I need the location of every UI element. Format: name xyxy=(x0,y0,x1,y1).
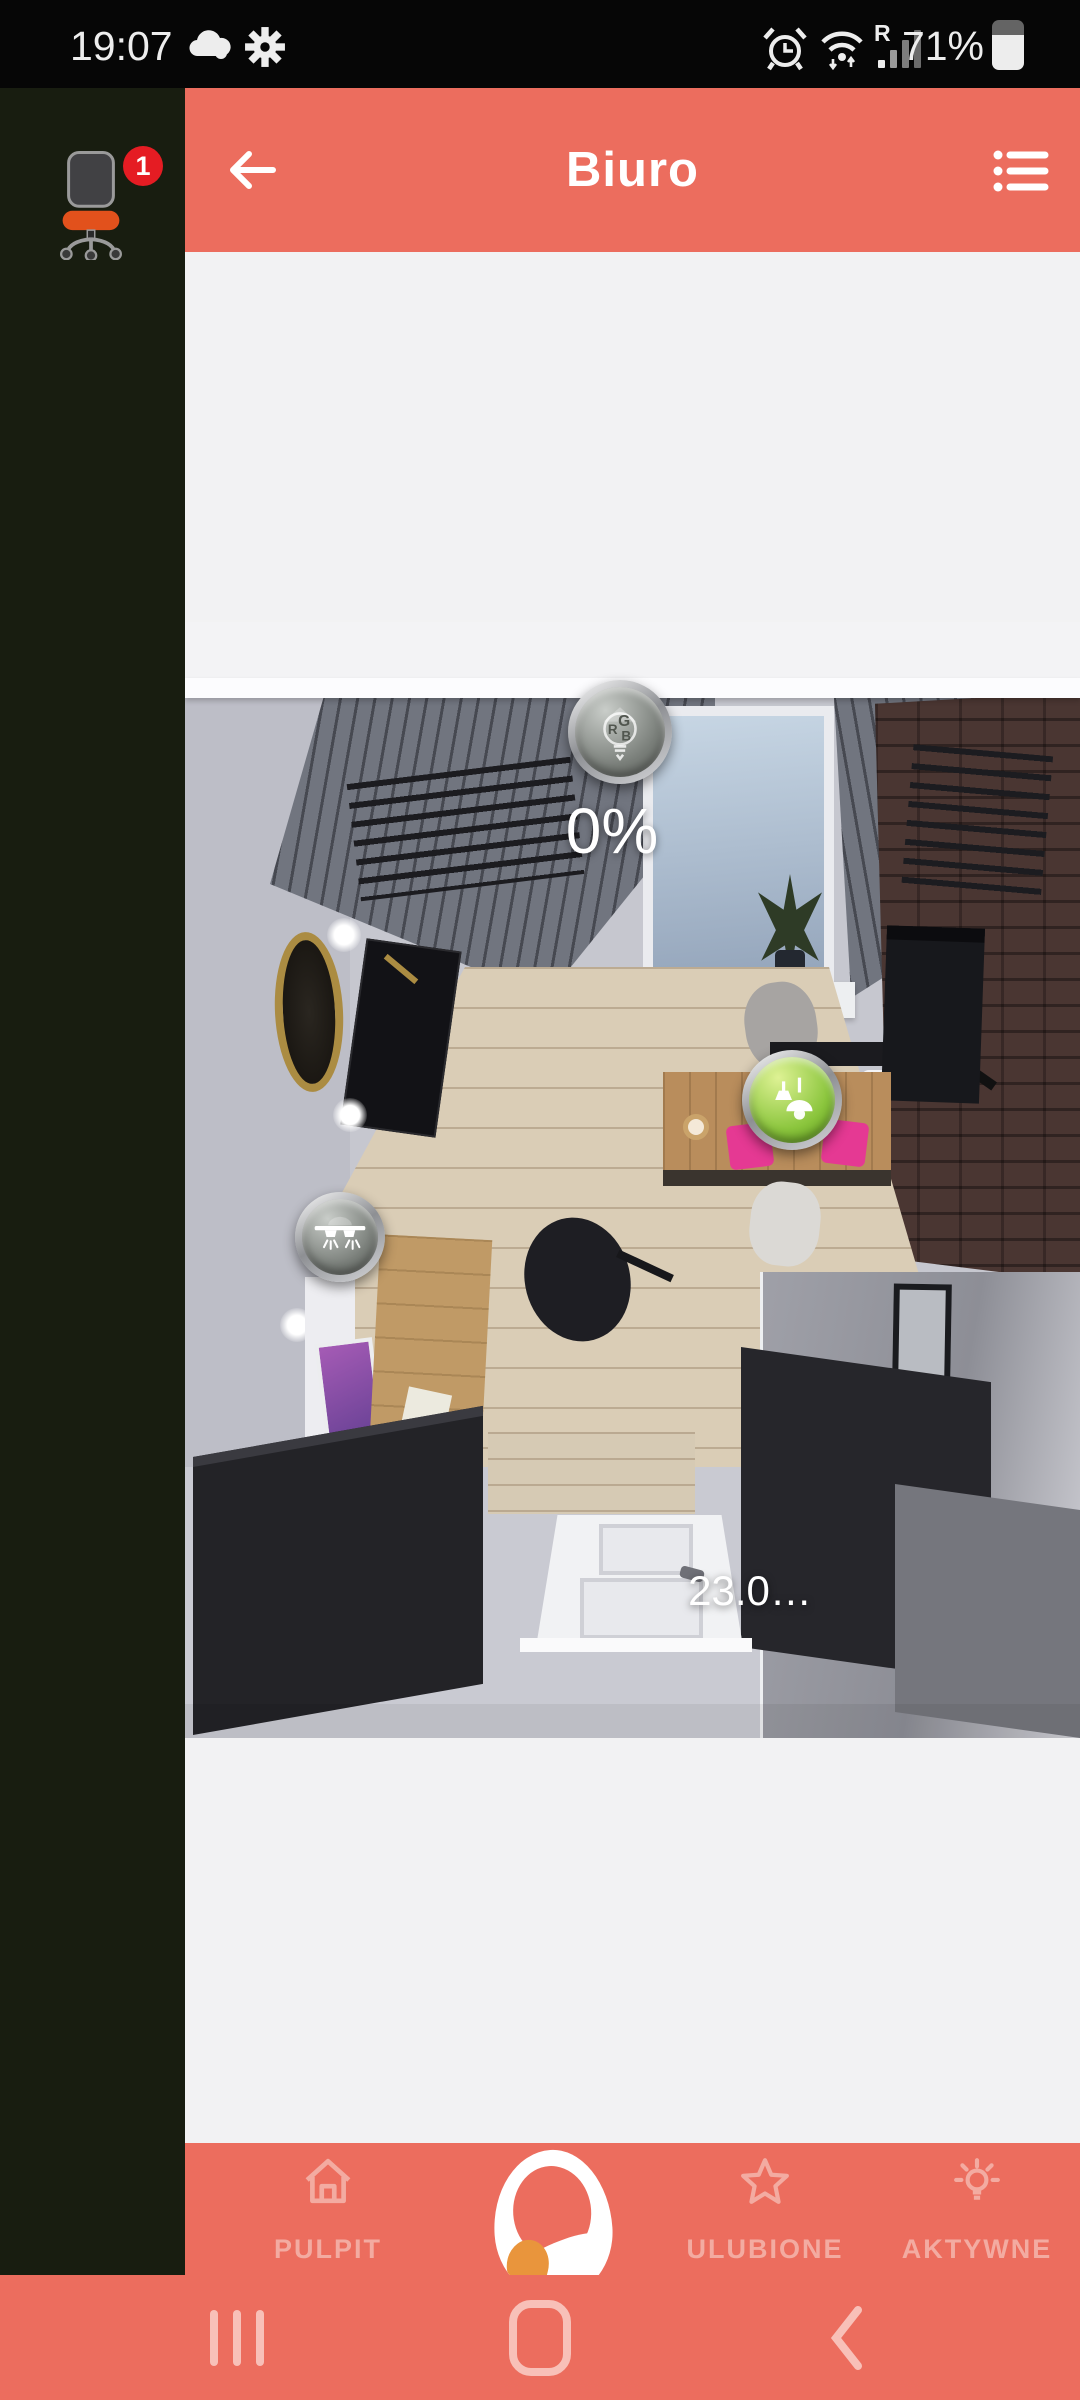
room-floor-strip xyxy=(488,1432,695,1514)
home-icon[interactable] xyxy=(509,2300,571,2376)
content-area: G R B 0% 23 xyxy=(185,252,1080,2143)
svg-text:B: B xyxy=(621,728,631,743)
room-door-threshold xyxy=(520,1638,752,1652)
room-wall-lamp xyxy=(327,918,361,952)
pendant-lamps-icon xyxy=(764,1072,820,1128)
bulb-icon xyxy=(952,2157,1002,2205)
pendant-light-button[interactable] xyxy=(742,1050,842,1150)
room-bottom-shade xyxy=(185,1704,1080,1738)
room-image: G R B 0% 23 xyxy=(185,622,1080,1738)
svg-text:R: R xyxy=(608,722,618,737)
room-wall-lamp xyxy=(333,1098,367,1132)
room-left-sideboard xyxy=(193,1406,483,1735)
wifi-icon xyxy=(818,26,866,70)
nav-label: PULPIT xyxy=(274,2234,382,2265)
office-chair-icon[interactable] xyxy=(52,148,130,260)
recents-icon[interactable] xyxy=(210,2310,264,2366)
star-icon xyxy=(740,2157,790,2205)
room-dark-shelf xyxy=(881,925,985,1103)
back-icon[interactable] xyxy=(828,2305,864,2371)
ceiling-light-button[interactable] xyxy=(295,1192,385,1282)
temperature-label: 23.0… xyxy=(650,1567,850,1615)
back-arrow-icon[interactable] xyxy=(225,146,279,194)
nav-item-pulpit[interactable]: PULPIT xyxy=(248,2157,408,2265)
cloud-icon xyxy=(188,26,232,62)
svg-text:G: G xyxy=(618,713,630,730)
room-right-sideboard-side xyxy=(895,1484,1080,1738)
android-navigation-bar xyxy=(0,2275,1080,2400)
battery-icon xyxy=(992,20,1024,70)
blind-level-label: 0% xyxy=(512,794,712,868)
room-blind-right xyxy=(901,744,1053,902)
ceiling-lights-icon xyxy=(313,1215,367,1259)
battery-percent: 71% xyxy=(902,0,984,88)
home-icon xyxy=(303,2157,353,2205)
status-bar: 19:07 R 71% xyxy=(0,0,1080,88)
list-menu-icon[interactable] xyxy=(993,148,1049,194)
rgb-bulb-icon: G R B xyxy=(589,701,651,763)
settings-gear-icon xyxy=(244,26,286,68)
nav-item-aktywne[interactable]: AKTYWNE xyxy=(897,2157,1057,2265)
alarm-clock-icon xyxy=(762,26,808,72)
notification-badge: 1 xyxy=(123,146,163,186)
page-title: Biuro xyxy=(185,88,1080,252)
nav-label: ULUBIONE xyxy=(687,2234,844,2265)
nav-label: AKTYWNE xyxy=(902,2234,1053,2265)
app-bar: Biuro xyxy=(185,88,1080,252)
sidebar: 1 xyxy=(0,88,185,2275)
rgb-light-button[interactable]: G R B xyxy=(568,680,672,784)
room-coffee-cup xyxy=(683,1114,709,1140)
clock-time: 19:07 xyxy=(70,0,173,88)
bottom-nav: PULPIT ULUBIONE AKTYWNE xyxy=(185,2143,1080,2275)
nav-item-ulubione[interactable]: ULUBIONE xyxy=(685,2157,845,2265)
